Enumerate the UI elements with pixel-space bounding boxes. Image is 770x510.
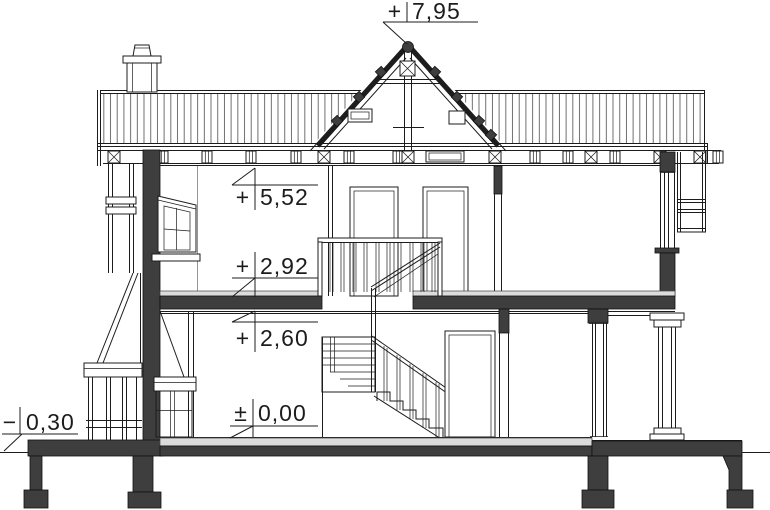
pier-right-wall (588, 456, 608, 490)
elevation-marker-ground-ceiling: + 2,60 (232, 311, 318, 352)
pier-left-wall (133, 456, 153, 492)
elevation-value-eaves: 5,52 (260, 184, 309, 210)
outdoor-grill (84, 163, 142, 440)
house-cross-section-drawing: + 7,95 + 5,52 + 2,92 + 2,60 ± 0,00 − 0,3… (0, 0, 770, 510)
attic-interior (152, 166, 660, 297)
pier-terrace (30, 456, 42, 490)
elevation-value-ridge: 7,95 (412, 0, 461, 24)
ground-door (445, 331, 495, 437)
ground-window-right (589, 323, 608, 437)
ground-slab (160, 446, 592, 456)
winder-steps (322, 337, 375, 392)
column-capital (650, 313, 684, 320)
elevation-sign-attic-floor: + (236, 253, 250, 279)
window-sill-right (655, 248, 679, 253)
left-wall (143, 150, 160, 443)
elevation-marker-eaves: + 5,52 (232, 168, 318, 210)
floor-screed (160, 438, 592, 446)
right-attic-wall (655, 152, 679, 296)
foundations (0, 438, 770, 508)
chimney-pot (133, 45, 151, 56)
balusters-lower (384, 346, 439, 437)
porch-edge-pier (723, 456, 742, 490)
grill-hood-slope (97, 273, 133, 363)
elevation-sign-ridge: + (388, 0, 402, 24)
grill-shelf (84, 363, 142, 377)
terrace-slab (28, 440, 163, 456)
elevation-value-ground-floor: 0,00 (258, 400, 307, 426)
eaves-band (97, 144, 723, 164)
elevation-marker-ground-floor: ± 0,00 (230, 399, 318, 438)
attic-window-sill (152, 254, 200, 261)
porch (592, 313, 742, 441)
window-lintel (588, 309, 608, 323)
attic-floor-slab (160, 291, 675, 323)
elevation-sign-eaves: + (236, 184, 250, 210)
fireplace-mantel (154, 377, 196, 391)
ridge-joint (403, 42, 414, 53)
elevation-value-terrain: 0,30 (26, 409, 75, 435)
attic-window (152, 196, 200, 261)
footing-terrace (24, 490, 48, 508)
column-base (654, 428, 681, 434)
elevation-value-ground-ceiling: 2,60 (260, 325, 309, 351)
footing-right-wall (582, 490, 614, 508)
staircase (322, 336, 449, 442)
chimney-cap (123, 56, 161, 63)
firebox (156, 391, 192, 437)
elevation-sign-ground-floor: ± (234, 400, 248, 426)
footing-porch (727, 490, 753, 508)
ground-floor-interior (154, 309, 608, 438)
elevation-marker-attic-floor: + 2,92 (232, 252, 318, 297)
architectural-section-page: + 7,95 + 5,52 + 2,92 + 2,60 ± 0,00 − 0,3… (0, 0, 770, 510)
purlin-left (348, 109, 372, 122)
fireplace-hood-slope (160, 311, 184, 377)
ground-partition-header (499, 309, 509, 333)
elevation-sign-ground-ceiling: + (236, 325, 250, 351)
purlin-right (449, 111, 465, 124)
handrail-lower (372, 336, 449, 390)
porch-slab (592, 441, 742, 456)
chimney (123, 45, 161, 92)
footing-left-wall (128, 492, 161, 508)
porch-column (650, 313, 684, 440)
chimney-body (127, 63, 157, 92)
elevation-marker-ridge: + 7,95 (383, 0, 478, 44)
handrail-top (318, 238, 442, 243)
elevation-value-attic-floor: 2,92 (260, 253, 309, 279)
elevation-sign-terrain: − (3, 409, 17, 435)
attic-partition-header (494, 166, 502, 194)
ridge-vent-box (426, 151, 464, 162)
